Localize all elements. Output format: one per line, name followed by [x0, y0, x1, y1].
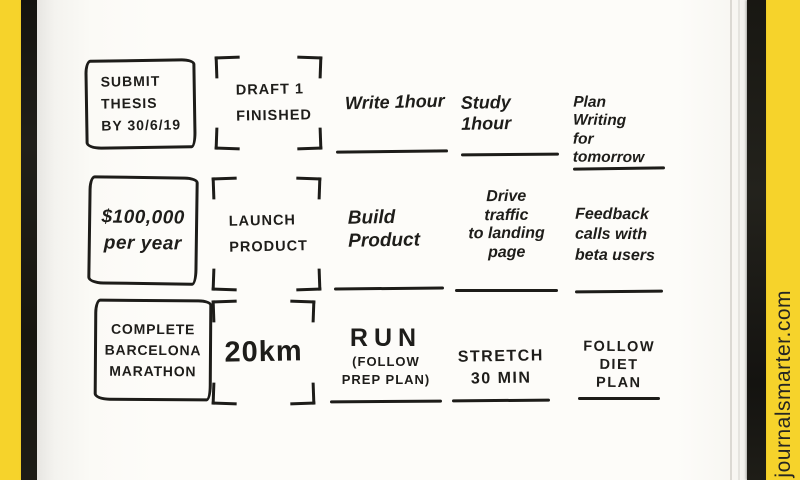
task-drive-traffic: Drive traffic to landing page [455, 188, 558, 292]
milestone-frame-20km: 20km [212, 300, 315, 405]
page-stack-edge [730, 0, 732, 480]
milestone-text: 20km [212, 326, 316, 380]
task-text: Plan Writing for tomorrow [573, 94, 666, 168]
task-line [330, 400, 442, 404]
task-run: RUN (FOLLOW PREP PLAN) [330, 324, 442, 403]
notebook-spine-edge [21, 0, 37, 480]
task-text: Drive traffic to landing page [455, 188, 559, 263]
milestone-frame-draft: DRAFT 1 FINISHED [215, 56, 322, 150]
bracket-corner-icon [212, 177, 238, 200]
task-text: RUN [330, 324, 442, 353]
bracket-corner-icon [212, 383, 238, 406]
watermark: journalsmarter.com [772, 290, 796, 478]
bracket-corner-icon [296, 269, 322, 292]
task-note: (FOLLOW PREP PLAN) [330, 353, 442, 388]
task-study: Study 1hour [461, 92, 559, 156]
task-line [336, 149, 448, 153]
task-text: STRETCH 30 MIN [452, 345, 551, 390]
task-line [578, 397, 660, 400]
bracket-corner-icon [290, 383, 316, 406]
goal-box-thesis: SUBMIT THESIS BY 30/6/19 [84, 58, 196, 150]
task-text: FOLLOW DIET PLAN [578, 338, 660, 393]
task-stretch: STRETCH 30 MIN [452, 346, 550, 402]
bracket-corner-icon [212, 269, 238, 292]
goal-box-income: $100,000 per year [87, 175, 199, 286]
task-feedback-calls: Feedback calls with beta users [575, 205, 663, 293]
page-stack-edge [738, 0, 740, 480]
bracket-corner-icon [215, 128, 241, 151]
goal-text: SUBMIT THESIS BY 30/6/19 [87, 71, 193, 138]
bracket-corner-icon [296, 177, 322, 200]
notebook-cover-edge [747, 0, 766, 480]
bracket-corner-icon [212, 300, 238, 323]
milestone-text: LAUNCH PRODUCT [211, 207, 321, 261]
task-diet: FOLLOW DIET PLAN [578, 338, 660, 400]
journal-photo: SUBMIT THESIS BY 30/6/19 DRAFT 1 FINISHE… [0, 0, 800, 480]
bracket-corner-icon [215, 56, 241, 79]
goal-box-marathon: COMPLETE BARCELONA MARATHON [94, 299, 213, 402]
task-build-product: Build Product [334, 207, 444, 290]
goal-text: $100,000 per year [91, 204, 196, 257]
task-text: Feedback calls with beta users [575, 205, 663, 267]
task-text: Write 1hour [336, 91, 449, 115]
task-line [334, 287, 444, 291]
task-plan-writing: Plan Writing for tomorrow [573, 94, 665, 158]
bracket-corner-icon [297, 128, 323, 151]
task-text: Study 1hour [461, 91, 560, 135]
bracket-corner-icon [290, 300, 316, 323]
task-line [575, 290, 663, 294]
goal-text: COMPLETE BARCELONA MARATHON [97, 318, 209, 382]
milestone-text: DRAFT 1 FINISHED [215, 76, 323, 130]
task-line [455, 289, 558, 292]
task-line [461, 153, 559, 157]
task-write: Write 1hour [336, 92, 448, 153]
bracket-corner-icon [297, 56, 323, 79]
task-line [452, 399, 550, 403]
milestone-frame-launch: LAUNCH PRODUCT [212, 177, 321, 291]
task-text: Build Product [334, 206, 445, 254]
